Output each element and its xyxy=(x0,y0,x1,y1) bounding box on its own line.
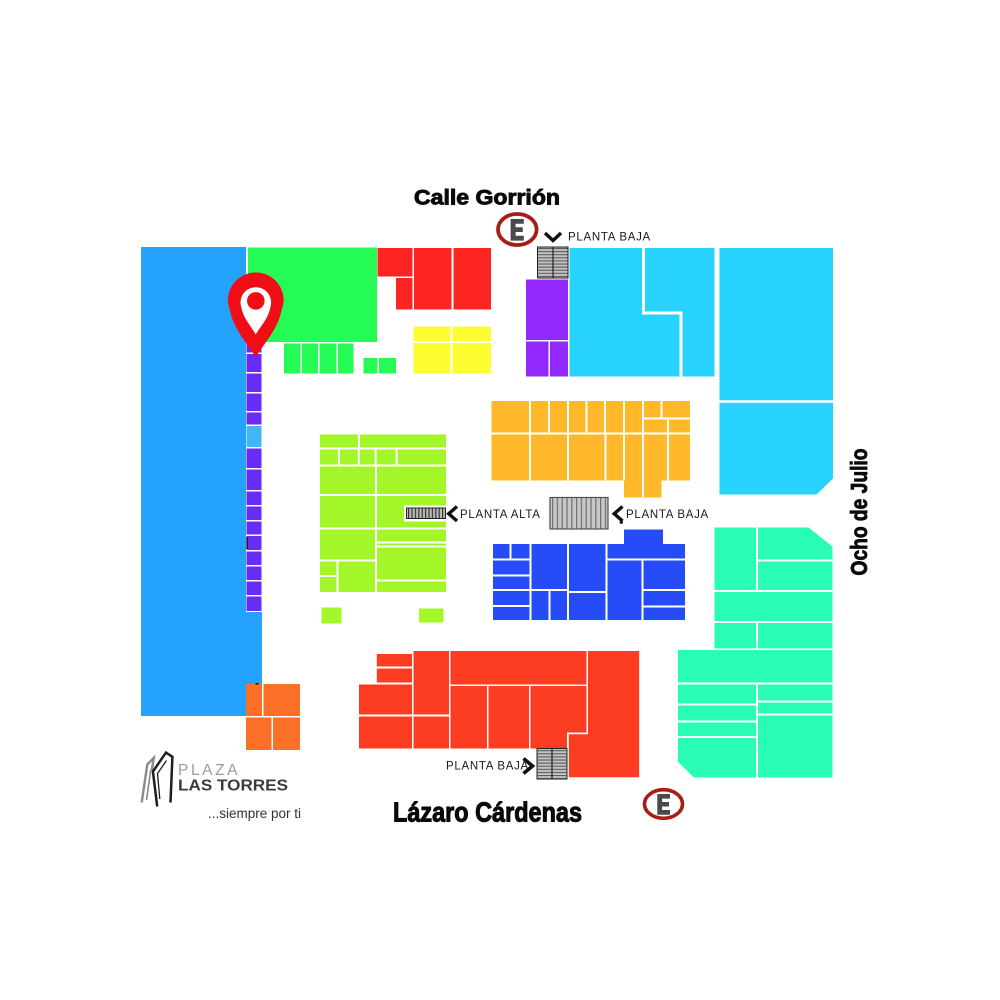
svg-text:Ocho de Julio: Ocho de Julio xyxy=(846,449,872,576)
svg-text:...siempre por ti: ...siempre por ti xyxy=(208,806,301,821)
svg-text:Calle Gorrión: Calle Gorrión xyxy=(414,186,560,209)
svg-text:PLANTA ALTA: PLANTA ALTA xyxy=(460,509,541,521)
svg-text:PLAZA: PLAZA xyxy=(178,762,240,779)
svg-text:PLANTA BAJA: PLANTA BAJA xyxy=(626,509,709,521)
svg-text:LAS TORRES: LAS TORRES xyxy=(178,778,288,795)
svg-text:PLANTA BAJA: PLANTA BAJA xyxy=(446,761,529,773)
svg-text:PLANTA BAJA: PLANTA BAJA xyxy=(568,232,651,244)
svg-text:Lázaro Cárdenas: Lázaro Cárdenas xyxy=(393,797,582,828)
